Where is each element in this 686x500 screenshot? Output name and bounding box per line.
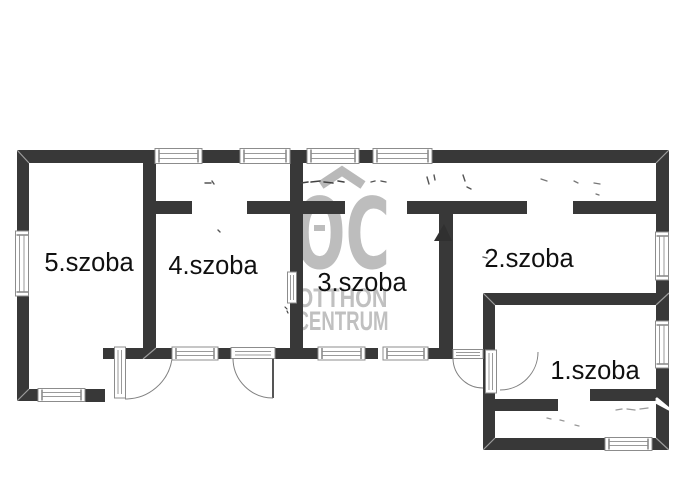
window bbox=[656, 321, 669, 368]
pencil-mark bbox=[205, 181, 214, 184]
window bbox=[38, 389, 85, 402]
watermark-logo: OC OTTHON CENTRUM bbox=[294, 171, 390, 336]
wall-divider-3-2 bbox=[439, 202, 453, 359]
pencil-mark bbox=[463, 175, 471, 189]
door-leaf bbox=[115, 347, 126, 398]
door-sill bbox=[453, 350, 483, 359]
window bbox=[373, 149, 432, 164]
door-swing-arc bbox=[500, 352, 538, 390]
wall-corridor-2 bbox=[247, 201, 345, 214]
door-swing-arc bbox=[453, 359, 483, 388]
room-label-2: 2.szoba bbox=[484, 245, 574, 273]
window bbox=[172, 347, 218, 360]
door-swing-arc bbox=[125, 359, 172, 399]
wall-block-top bbox=[483, 293, 669, 305]
wall-corridor-3 bbox=[407, 201, 527, 214]
wall-room5-bottom-right bbox=[85, 389, 105, 402]
logo-dash bbox=[314, 225, 325, 231]
pencil-mark bbox=[285, 307, 288, 313]
floorplan-canvas: OC OTTHON CENTRUM bbox=[0, 0, 686, 500]
window bbox=[656, 232, 669, 280]
pencil-mark bbox=[547, 408, 648, 426]
window bbox=[383, 347, 428, 360]
wall-bottom-3 bbox=[275, 348, 318, 359]
door-leaf bbox=[486, 350, 497, 393]
room-label-3: 3.szoba bbox=[317, 269, 407, 297]
door-leaf bbox=[288, 272, 297, 303]
wall-block-interior-right bbox=[590, 389, 660, 401]
wall-bottom-4 bbox=[365, 348, 378, 359]
window bbox=[16, 231, 29, 296]
window bbox=[155, 149, 202, 164]
wall-corridor-4 bbox=[573, 201, 669, 214]
room-label-5: 5.szoba bbox=[44, 249, 134, 277]
wall-block-interior-left bbox=[490, 399, 558, 411]
pencil-mark bbox=[427, 175, 435, 184]
door-sill bbox=[231, 348, 275, 359]
wall-corridor-1 bbox=[153, 201, 192, 214]
room-label-4: 4.szoba bbox=[168, 252, 258, 280]
door-swing-arc bbox=[233, 359, 273, 398]
window bbox=[307, 149, 359, 164]
room-label-1: 1.szoba bbox=[550, 357, 640, 385]
wall-divider-5-4 bbox=[143, 150, 156, 359]
pencil-mark bbox=[541, 179, 600, 195]
window bbox=[240, 149, 290, 164]
window bbox=[318, 347, 365, 360]
floorplan-drawing: OC OTTHON CENTRUM bbox=[0, 0, 686, 500]
wall-divider-4-3-jamb bbox=[297, 272, 303, 303]
window bbox=[605, 438, 652, 451]
wall-bottom-5 bbox=[428, 348, 453, 359]
wall-bottom-1 bbox=[103, 348, 172, 359]
watermark-line2: CENTRUM bbox=[296, 306, 389, 336]
